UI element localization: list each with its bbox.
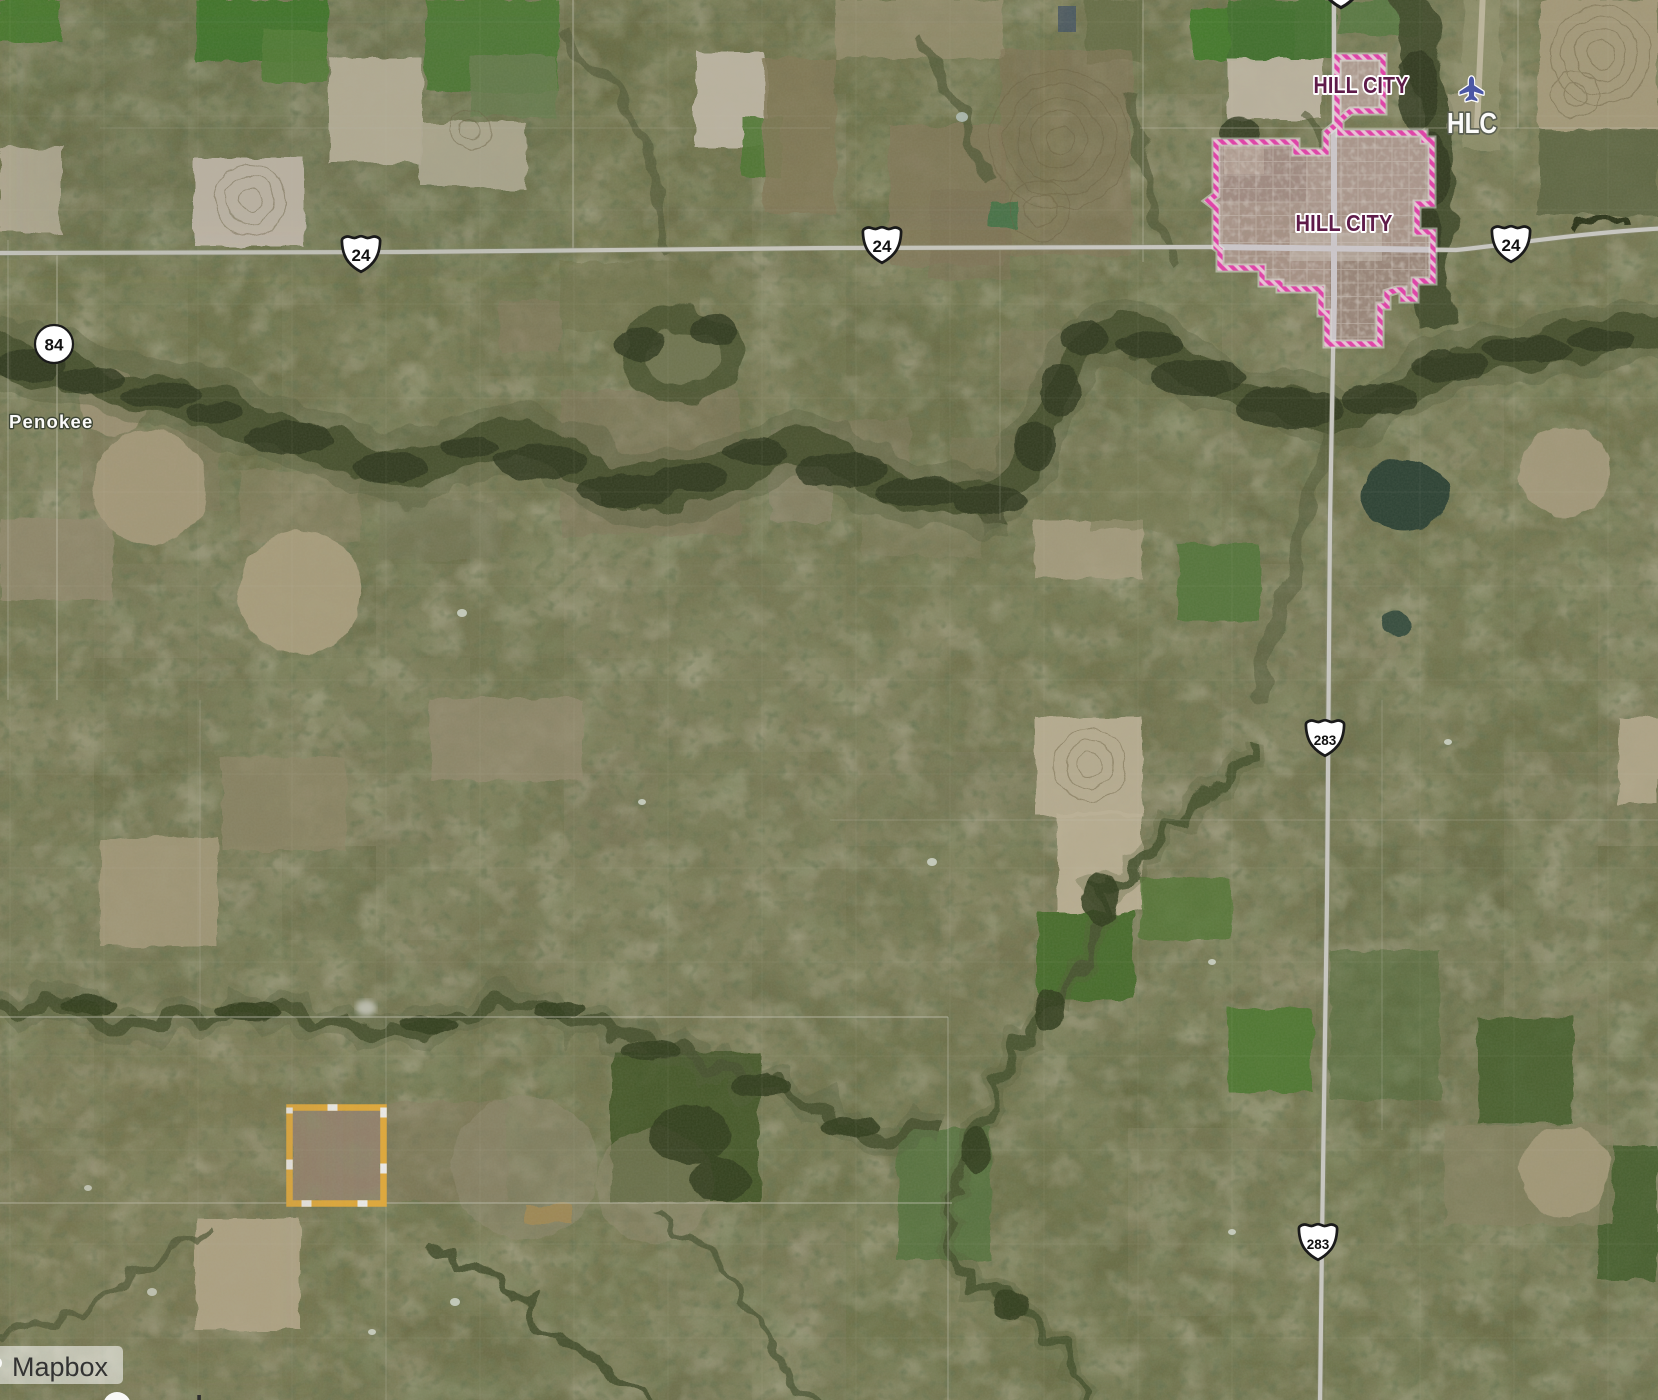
svg-text:84: 84: [45, 336, 64, 355]
svg-text:HILL CITY: HILL CITY: [1314, 72, 1409, 98]
svg-text:283: 283: [1307, 1237, 1330, 1252]
svg-text:Mapbox: Mapbox: [12, 1352, 109, 1382]
svg-text:24: 24: [352, 246, 371, 265]
svg-text:24: 24: [873, 237, 892, 256]
svg-text:24: 24: [1502, 236, 1521, 255]
svg-text:mapbox: mapbox: [142, 1390, 242, 1400]
svg-text:HLC: HLC: [1447, 108, 1497, 140]
svg-text:Penokee: Penokee: [9, 411, 94, 432]
svg-text:283: 283: [1314, 733, 1337, 748]
svg-text:HILL CITY: HILL CITY: [1296, 210, 1393, 236]
